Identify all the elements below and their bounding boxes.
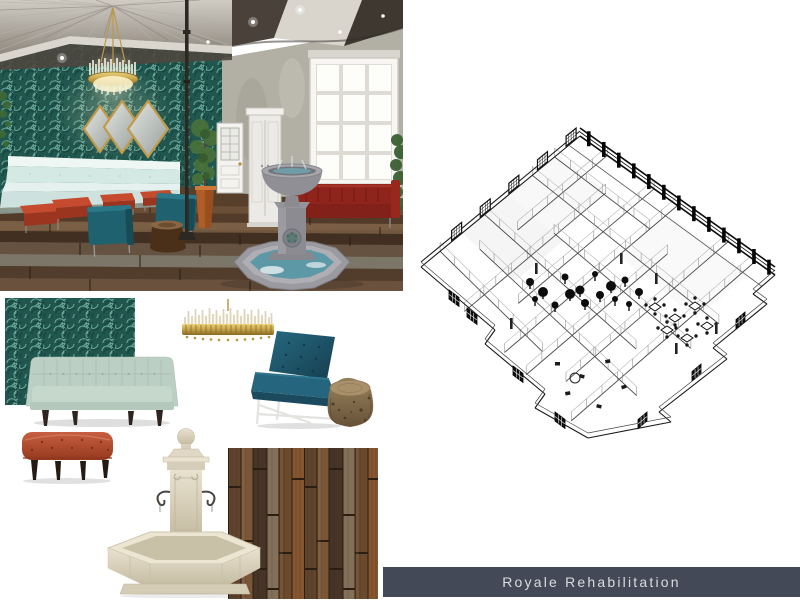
lobby-3d-render: [0, 0, 403, 291]
stone-garden-fountain: [100, 426, 265, 598]
mint-green-tufted-sofa: [16, 350, 188, 428]
project-title: Royale Rehabilitation: [502, 574, 681, 590]
glass-door: [217, 123, 243, 193]
isometric-wireframe-floorplan: [415, 122, 800, 452]
title-banner: Royale Rehabilitation: [383, 567, 800, 597]
presentation-board: Royale Rehabilitation: [0, 0, 800, 600]
tree-stump-side-table: [321, 374, 379, 429]
